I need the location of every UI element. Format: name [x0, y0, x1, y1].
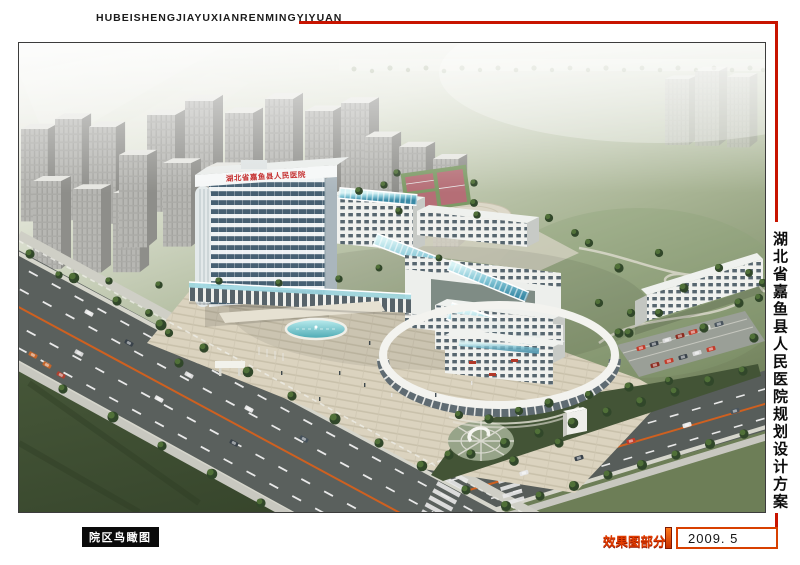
- footer-date-box: 2009. 5: [676, 527, 778, 549]
- top-red-rule: [299, 21, 778, 24]
- footer-date-text: 2009. 5: [688, 531, 738, 546]
- right-red-rule-top: [775, 21, 778, 222]
- photo-caption-badge: 院区鸟瞰图: [82, 527, 159, 547]
- footer-divider-bar: [665, 527, 672, 549]
- presentation-board: HUBEISHENGJIAYUXIANRENMINGYIYUAN 湖北省嘉鱼县人…: [0, 0, 800, 565]
- footer-section-label: 效果图部分: [603, 531, 666, 550]
- right-red-rule-bottom: [775, 513, 778, 527]
- aerial-rendering-frame: 湖北省嘉鱼县人民医院: [18, 42, 766, 513]
- aerial-rendering: 湖北省嘉鱼县人民医院: [19, 43, 765, 512]
- side-title-vertical: 湖北省嘉鱼县人民医院规划设计方案: [763, 231, 795, 516]
